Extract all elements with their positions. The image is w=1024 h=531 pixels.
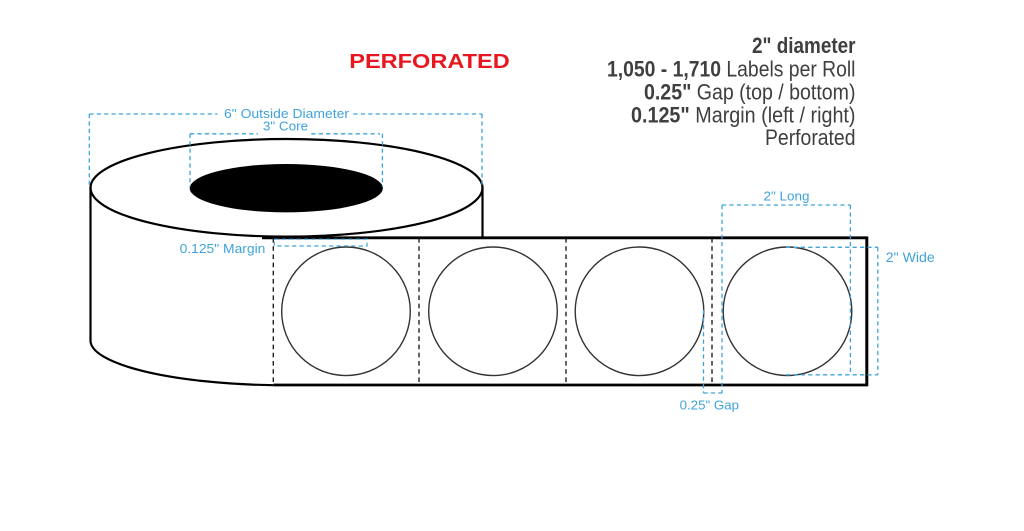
svg-text:0.25" Gap (top / bottom): 0.25" Gap (top / bottom) <box>644 80 856 105</box>
svg-text:1,050 - 1,710 Labels per Roll: 1,050 - 1,710 Labels per Roll <box>607 57 856 82</box>
svg-text:2" Wide: 2" Wide <box>886 249 935 265</box>
svg-text:Perforated: Perforated <box>765 125 856 150</box>
svg-text:0.25" Gap: 0.25" Gap <box>680 398 739 413</box>
svg-text:0.125" Margin (left / right): 0.125" Margin (left / right) <box>631 102 856 127</box>
svg-text:0.125" Margin: 0.125" Margin <box>180 241 266 256</box>
svg-text:3" Core: 3" Core <box>263 119 308 134</box>
svg-text:2" Long: 2" Long <box>764 189 810 204</box>
svg-text:PERFORATED: PERFORATED <box>349 50 510 73</box>
svg-text:2" diameter: 2" diameter <box>752 33 856 58</box>
